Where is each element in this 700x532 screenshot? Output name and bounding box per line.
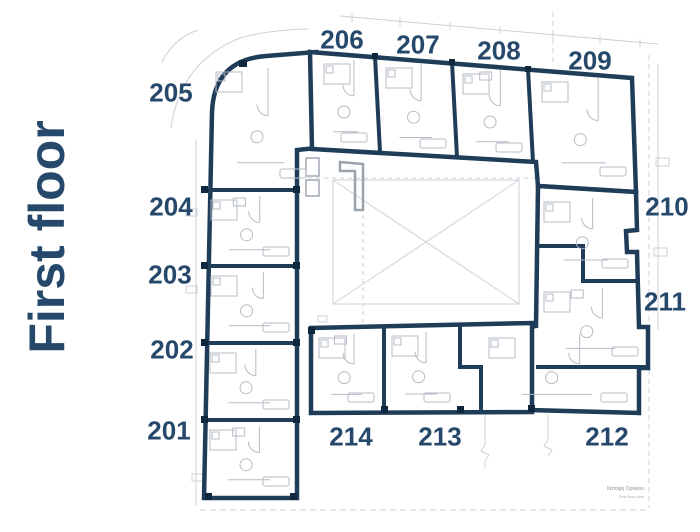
- unit-label-214: 214: [329, 422, 372, 453]
- caption-line1: Κάτοψη Ορόφου: [556, 486, 644, 494]
- right-wing: [530, 186, 648, 413]
- unit-label-211: 211: [644, 287, 686, 318]
- courtyard: [333, 180, 519, 304]
- unit-label-208: 208: [477, 36, 520, 67]
- stair-core: [306, 158, 363, 210]
- unit-label-209: 209: [568, 46, 611, 77]
- unit-label-212: 212: [585, 422, 628, 453]
- caption-line2: First floor plan: [556, 494, 644, 500]
- unit-label-213: 213: [418, 422, 461, 453]
- drawing-caption: Κάτοψη Ορόφου First floor plan: [556, 486, 644, 500]
- unit-label-210: 210: [645, 192, 688, 223]
- unit-label-204: 204: [149, 192, 192, 223]
- floor-plan-page: First floor: [0, 0, 700, 532]
- unit-label-203: 203: [148, 260, 191, 291]
- left-wing: [204, 52, 316, 498]
- unit-label-206: 206: [320, 25, 363, 56]
- unit-label-207: 207: [396, 30, 439, 61]
- unit-label-202: 202: [150, 335, 193, 366]
- unit-label-205: 205: [149, 78, 192, 109]
- unit-label-201: 201: [147, 416, 190, 447]
